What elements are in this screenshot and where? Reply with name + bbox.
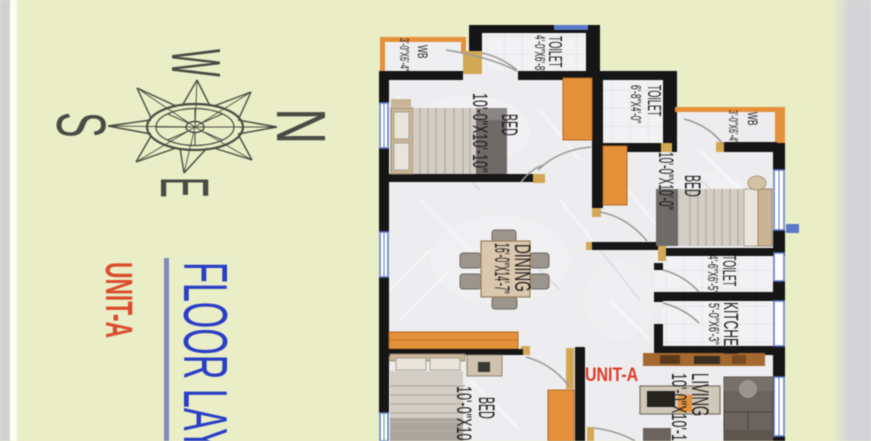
svg-text:6'-8"X4'-0": 6'-8"X4'-0": [627, 85, 644, 123]
svg-text:4'-0"X6'-8": 4'-0"X6'-8": [531, 35, 548, 73]
svg-text:WB: WB: [744, 112, 759, 126]
svg-text:W: W: [156, 49, 234, 77]
svg-text:10'-0"X10'-0": 10'-0"X10'-0": [452, 386, 476, 441]
svg-text:4'-6"X6'-5": 4'-6"X6'-5": [704, 255, 721, 293]
svg-text:BED: BED: [497, 114, 522, 136]
svg-text:S: S: [42, 112, 120, 138]
svg-text:3'-0"X6'-4": 3'-0"X6'-4": [725, 110, 739, 143]
svg-text:BED: BED: [474, 397, 499, 419]
svg-text:UNIT-A: UNIT-A: [98, 262, 140, 338]
svg-text:3'-0"X6'-4": 3'-0"X6'-4": [396, 38, 410, 71]
svg-text:10'-0"X10'-0": 10'-0"X10'-0": [654, 152, 677, 210]
svg-text:N: N: [262, 108, 340, 144]
svg-text:5'-0"X6'-3": 5'-0"X6'-3": [705, 303, 722, 345]
svg-text:FLOOR LAYOUT: FLOOR LAYOUT: [170, 262, 239, 441]
svg-text:TOILET: TOILET: [643, 85, 663, 117]
svg-text:BED: BED: [680, 175, 705, 197]
svg-text:16'-0"X14'-7": 16'-0"X14'-7": [490, 243, 513, 294]
svg-text:WB: WB: [414, 45, 429, 59]
svg-text:UNIT-A: UNIT-A: [585, 364, 638, 386]
svg-text:E: E: [146, 177, 222, 198]
svg-text:10'-0"X10'-10": 10'-0"X10'-10": [468, 93, 492, 173]
svg-text:10'-0"X10'-10": 10'-0"X10'-10": [667, 373, 691, 441]
